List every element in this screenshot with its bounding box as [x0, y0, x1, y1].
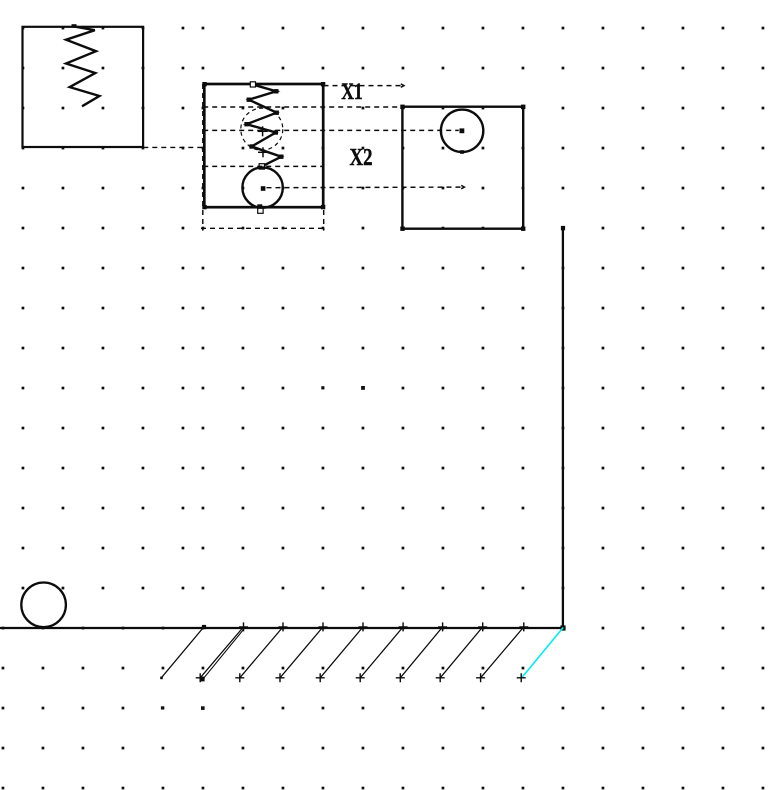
svg-text:X2: X2	[350, 145, 373, 171]
svg-text:X1: X1	[341, 79, 363, 105]
